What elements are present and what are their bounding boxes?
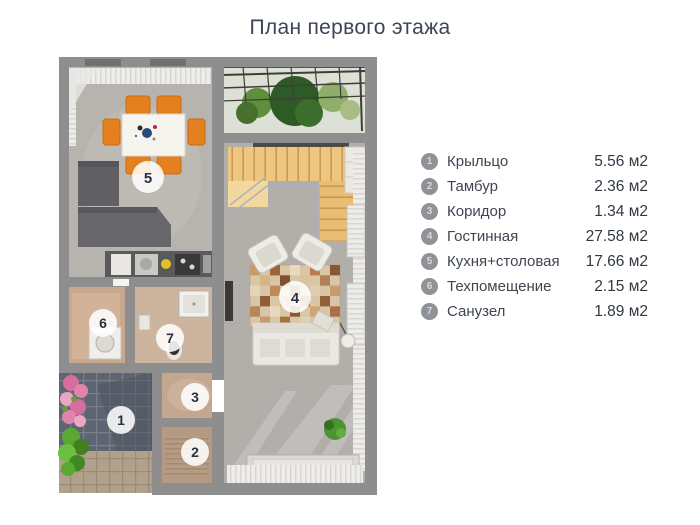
legend-item-badge: 6 [421,278,438,295]
legend-item-area: 5.56 м2 [594,153,648,171]
dining-table [122,114,185,156]
legend-item-label: Тамбур [447,178,498,195]
legend-item-area: 1.89 м2 [594,303,648,321]
porch [58,373,152,493]
legend-item: 3 Коридор 1.34 м2 [421,199,648,224]
svg-text:1: 1 [117,412,125,428]
legend-item: 6 Техпомещение 2.15 м2 [421,274,648,299]
svg-text:5: 5 [144,170,152,187]
legend-item-label: Техпомещение [447,278,551,295]
legend-item-area: 2.36 м2 [594,178,648,196]
legend-item-badge: 4 [421,228,438,245]
svg-text:2: 2 [191,444,199,460]
legend-item: 2 Тамбур 2.36 м2 [421,174,648,199]
room-marker-5: 5 [132,161,164,193]
kitchen-counter [105,251,214,277]
legend-item-badge: 2 [421,178,438,195]
legend-item-label: Крыльцо [447,153,508,170]
page-title: План первого этажа [0,16,700,40]
legend-item-label: Гостинная [447,228,518,245]
svg-text:6: 6 [99,315,107,331]
legend-item-badge: 7 [421,303,438,320]
legend-item: 4 Гостинная 27.58 м2 [421,224,648,249]
legend-item-area: 2.15 м2 [594,278,648,296]
room-marker-2: 2 [181,438,209,466]
legend-item: 5 Кухня+столовая 17.66 м2 [421,249,648,274]
legend-item: 7 Санузел 1.89 м2 [421,299,648,324]
tv-unit [225,281,233,321]
legend-item-badge: 5 [421,253,438,270]
svg-text:4: 4 [291,290,300,307]
room-marker-6: 6 [89,309,117,337]
living-room [224,143,367,483]
legend-item: 1 Крыльцо 5.56 м2 [421,149,648,174]
legend-item-badge: 3 [421,203,438,220]
winter-garden [209,57,377,145]
room-marker-1: 1 [107,406,135,434]
legend-item-label: Санузел [447,303,505,320]
legend-item-area: 17.66 м2 [586,253,648,271]
legend-item-badge: 1 [421,153,438,170]
legend-item-area: 1.34 м2 [594,203,648,221]
room-marker-4: 4 [279,281,311,313]
legend-item-area: 27.58 м2 [586,228,648,246]
legend-item-label: Кухня+столовая [447,253,560,270]
legend-item-label: Коридор [447,203,506,220]
svg-text:3: 3 [191,389,199,405]
svg-text:7: 7 [166,330,174,346]
room-marker-3: 3 [181,383,209,411]
room-marker-7: 7 [156,324,184,352]
room-legend: 1 Крыльцо 5.56 м2 2 Тамбур 2.36 м2 3 Кор… [421,149,648,324]
floor-plan: 1 2 3 4 5 6 7 [57,55,382,501]
